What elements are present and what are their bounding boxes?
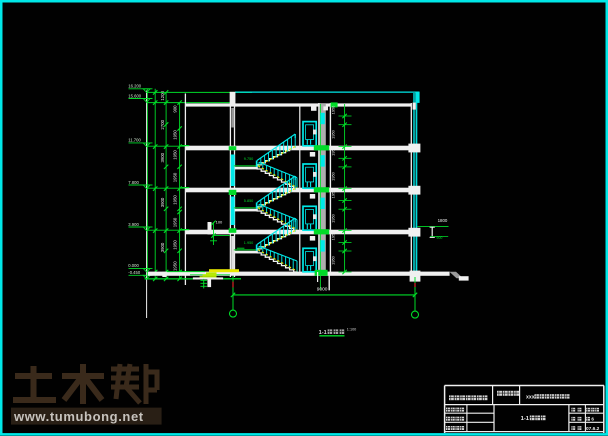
svg-text:16.200: 16.200 [128, 84, 141, 89]
svg-text:www.tumubong.net: www.tumubong.net [13, 409, 144, 424]
svg-text:5.850: 5.850 [244, 199, 254, 203]
svg-text:1-1: 1-1 [521, 416, 530, 422]
svg-text:xxx: xxx [526, 394, 535, 400]
svg-text:9000: 9000 [317, 286, 328, 292]
svg-text:1-1: 1-1 [319, 330, 327, 336]
svg-text:1950: 1950 [173, 240, 178, 250]
svg-text:1950: 1950 [331, 189, 336, 198]
svg-text:1950: 1950 [331, 231, 336, 240]
svg-text:15.600: 15.600 [128, 93, 141, 98]
svg-text:900: 900 [436, 236, 442, 240]
svg-text:1950: 1950 [173, 195, 178, 205]
svg-text:0.000: 0.000 [128, 263, 139, 268]
svg-text:3900: 3900 [160, 242, 165, 252]
svg-text:3.900: 3.900 [128, 222, 139, 227]
svg-text:1950: 1950 [331, 105, 336, 114]
svg-text:1950: 1950 [331, 146, 336, 155]
svg-text:2700: 2700 [160, 119, 165, 129]
svg-text:100: 100 [216, 220, 223, 225]
svg-text:3900: 3900 [160, 152, 165, 162]
svg-text:1950: 1950 [173, 261, 178, 271]
svg-text:1:100: 1:100 [347, 328, 357, 332]
svg-text:7.800: 7.800 [128, 180, 139, 185]
svg-text:1950: 1950 [331, 213, 336, 222]
svg-text:1950: 1950 [173, 150, 178, 160]
svg-text:1950: 1950 [173, 172, 178, 182]
svg-text:1950: 1950 [331, 255, 336, 264]
svg-text:07.6.2: 07.6.2 [586, 426, 600, 432]
svg-text:9.750: 9.750 [244, 157, 254, 161]
svg-text:6: 6 [591, 417, 594, 422]
svg-text:1800: 1800 [438, 218, 448, 223]
svg-text:11.700: 11.700 [128, 138, 141, 143]
svg-text:1950: 1950 [173, 217, 178, 227]
svg-text:1.950: 1.950 [244, 241, 254, 245]
svg-text:1950: 1950 [331, 171, 336, 180]
svg-text:900: 900 [173, 105, 178, 113]
svg-text:3900: 3900 [160, 197, 165, 207]
svg-text:-0.450: -0.450 [128, 270, 141, 275]
svg-text:1950: 1950 [173, 130, 178, 140]
svg-text:1950: 1950 [331, 129, 336, 138]
